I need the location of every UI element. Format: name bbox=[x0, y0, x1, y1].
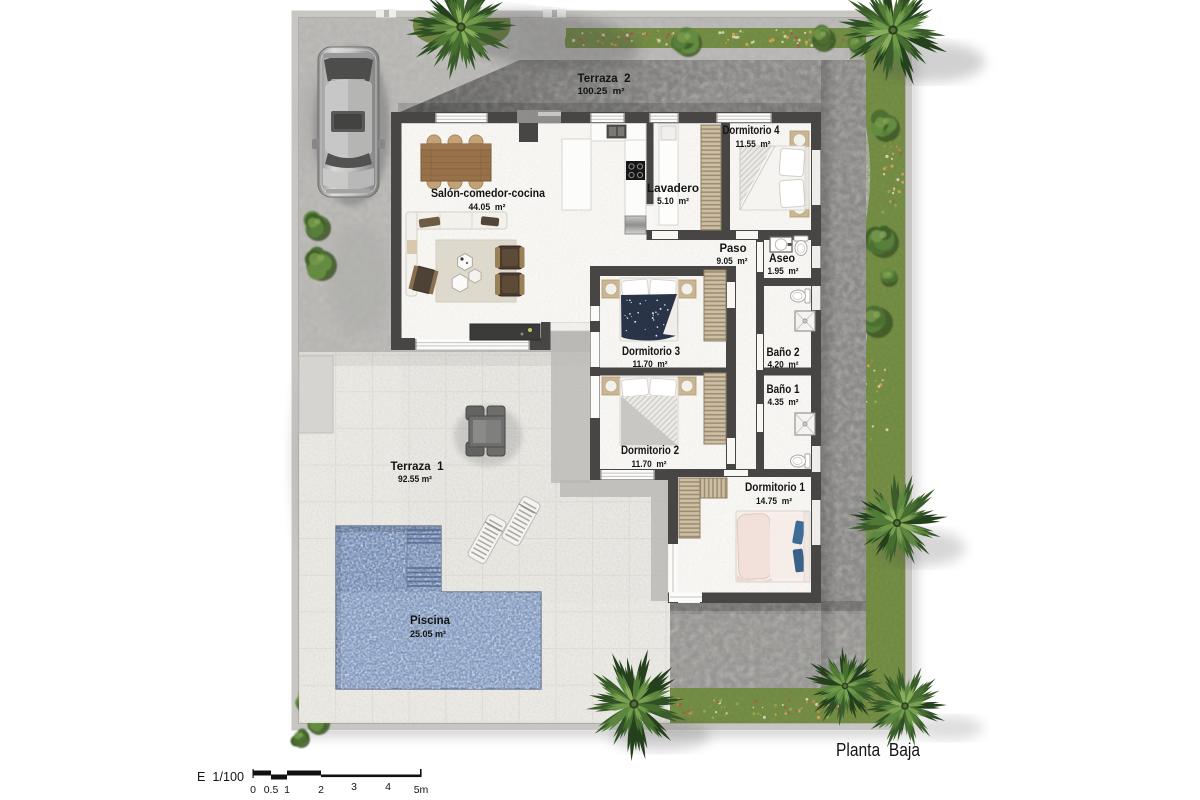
svg-text:Dormitorio 4: Dormitorio 4 bbox=[723, 125, 780, 137]
svg-text:Dormitorio 3: Dormitorio 3 bbox=[622, 346, 680, 358]
svg-text:5.10 m²: 5.10 m² bbox=[657, 196, 689, 206]
svg-text:3: 3 bbox=[351, 781, 357, 793]
svg-text:4.20 m²: 4.20 m² bbox=[768, 360, 799, 370]
svg-text:4.35 m²: 4.35 m² bbox=[768, 397, 799, 407]
svg-text:Lavadero: Lavadero bbox=[647, 183, 699, 195]
svg-text:9.05 m²: 9.05 m² bbox=[717, 256, 748, 266]
svg-text:Salón-comedor-cocina: Salón-comedor-cocina bbox=[431, 188, 546, 200]
svg-text:11.70 m²: 11.70 m² bbox=[633, 359, 668, 369]
svg-text:100.25 m²: 100.25 m² bbox=[578, 86, 625, 96]
svg-text:11.55 m²: 11.55 m² bbox=[736, 139, 771, 149]
svg-text:Baño 1: Baño 1 bbox=[767, 384, 801, 396]
svg-text:11.70 m²: 11.70 m² bbox=[632, 459, 667, 469]
svg-text:0: 0 bbox=[250, 784, 256, 796]
svg-text:4: 4 bbox=[385, 781, 391, 793]
svg-text:92.55 m²: 92.55 m² bbox=[398, 474, 432, 484]
svg-text:Paso: Paso bbox=[720, 243, 747, 255]
svg-text:0.5: 0.5 bbox=[264, 784, 279, 796]
svg-text:1: 1 bbox=[284, 784, 290, 796]
svg-text:1.95 m²: 1.95 m² bbox=[768, 266, 799, 276]
svg-text:Dormitorio 1: Dormitorio 1 bbox=[745, 482, 806, 494]
svg-text:5m: 5m bbox=[414, 784, 429, 796]
svg-text:E 1/100: E 1/100 bbox=[197, 769, 244, 784]
svg-text:25.05 m²: 25.05 m² bbox=[410, 629, 446, 639]
svg-text:Piscina: Piscina bbox=[410, 615, 451, 627]
svg-text:Planta Baja: Planta Baja bbox=[836, 740, 921, 760]
svg-text:14.75 m²: 14.75 m² bbox=[756, 496, 792, 506]
svg-text:Terraza 2: Terraza 2 bbox=[578, 73, 631, 85]
svg-text:Aseo: Aseo bbox=[769, 253, 795, 265]
svg-text:Dormitorio 2: Dormitorio 2 bbox=[621, 445, 679, 457]
svg-text:44.05 m²: 44.05 m² bbox=[469, 202, 506, 212]
svg-text:Terraza 1: Terraza 1 bbox=[391, 461, 445, 473]
svg-text:2: 2 bbox=[318, 784, 324, 796]
svg-text:Baño 2: Baño 2 bbox=[767, 347, 800, 359]
